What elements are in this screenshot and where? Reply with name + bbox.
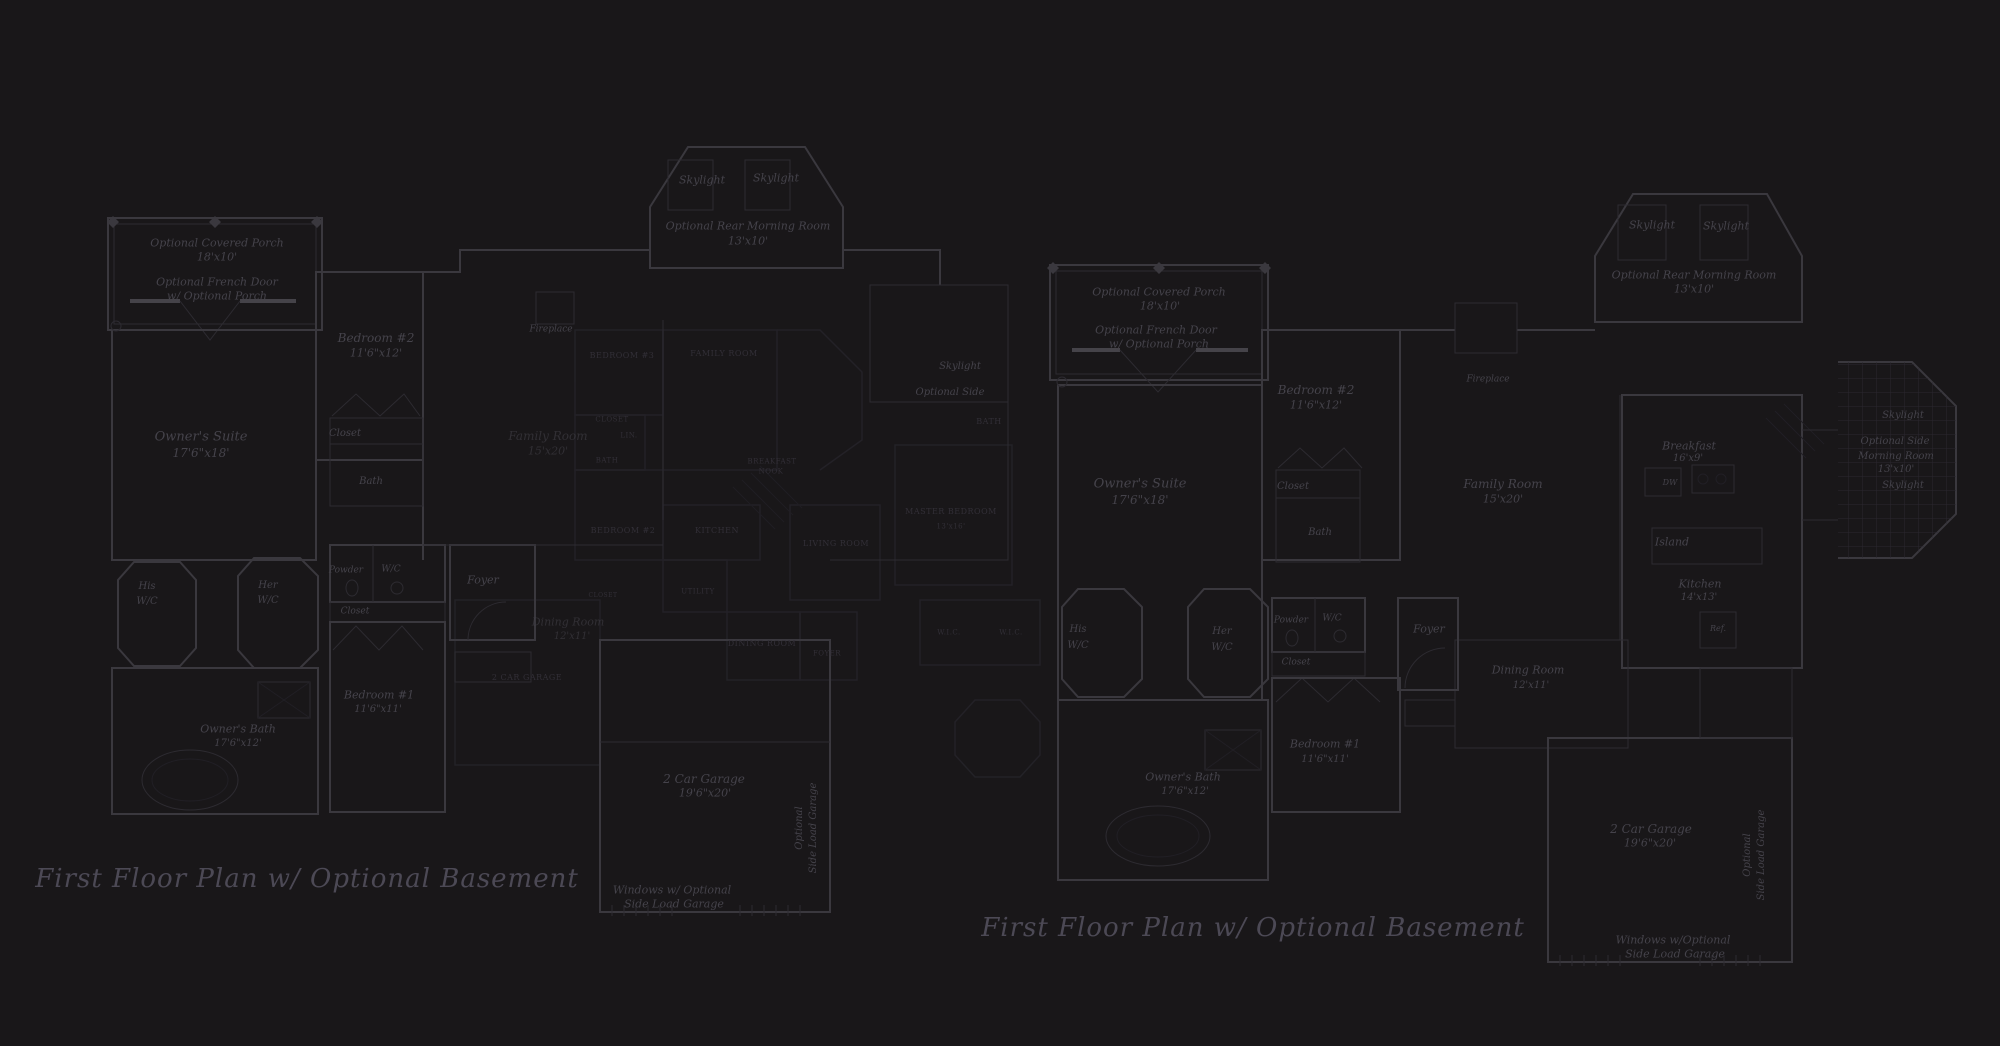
left-garage-opt-1: Optional [795,806,805,849]
right-dining-name: Dining Room [1492,665,1565,676]
left-family-room-dims: 15'x20' [528,446,568,457]
left-garage-windows-1: Windows w/ Optional [613,885,731,896]
left-her-2: W/C [257,596,278,606]
left-her-1: Her [258,581,277,591]
right-closet-upper: Closet [1277,482,1309,492]
right-breakfast-dims: 16'x9' [1673,454,1703,464]
right-bedroom1-dims: 11'6"x11' [1301,755,1349,765]
right-island: Island [1655,537,1689,548]
left-wc: W/C [381,566,400,575]
left-bedroom2-name: Bedroom #2 [338,332,415,344]
mid-garage: 2 CAR GARAGE [492,674,562,682]
right-her-2: W/C [1211,643,1232,653]
right-wc: W/C [1322,615,1341,624]
right-garage-windows-1: Windows w/Optional [1616,935,1731,946]
left-closet-upper: Closet [329,429,361,439]
mid-master-bedroom: MASTER BEDROOM [905,508,997,516]
mid-family-room: FAMILY ROOM [690,350,757,358]
right-porch-dims: 18'x10' [1140,301,1180,312]
left-garage-dims: 19'6"x20' [679,788,731,799]
right-fireplace: Fireplace [1466,376,1509,385]
left-morning-room-name: Optional Rear Morning Room [666,221,831,232]
left-bedroom1-name: Bedroom #1 [344,690,414,701]
right-kitchen-name: Kitchen [1679,579,1722,590]
left-garage-windows-2: Side Load Garage [624,899,724,910]
floor-plan-sheet: First Floor Plan w/ Optional Basement Fi… [0,0,2000,1046]
right-side-morning-dims: 13'x10' [1878,465,1915,475]
right-foyer: Foyer [1413,624,1445,635]
right-bath-upper: Bath [1308,528,1332,538]
mid-closet-2: CLOSET [589,593,618,599]
left-garage-opt-2: Side Load Garage [809,783,819,874]
left-his-2: W/C [136,597,157,607]
right-bedroom2-name: Bedroom #2 [1278,384,1355,396]
left-morning-room-dims: 13'x10' [728,236,768,247]
left-owners-suite-name: Owner's Suite [155,431,248,444]
left-porch-name: Optional Covered Porch [150,238,283,249]
mid-kitchen: KITCHEN [695,527,739,535]
right-porch-name: Optional Covered Porch [1092,287,1225,298]
right-owners-suite-name: Owner's Suite [1094,478,1187,491]
mid-living-room: LIVING ROOM [803,540,869,548]
left-plan-title: First Floor Plan w/ Optional Basement [35,866,579,892]
right-side-skylight-2: Skylight [1882,481,1924,491]
right-closet-lower: Closet [1282,659,1311,668]
mid-lin: LIN. [620,433,637,440]
left-owners-suite-dims: 17'6"x18' [172,447,229,459]
left-skylight-1: Skylight [679,175,725,186]
right-bedroom1-name: Bedroom #1 [1290,739,1360,750]
right-garage-opt-1: Optional [1743,833,1753,876]
left-bedroom1-dims: 11'6"x11' [354,705,402,715]
left-foyer: Foyer [467,575,499,586]
mid-bath-2: BATH [976,418,1002,426]
mid-bedroom3: BEDROOM #3 [590,352,655,360]
right-garage-opt-2: Side Load Garage [1757,810,1767,901]
mid-breakfast: BREAKFAST [747,459,796,466]
left-french-door-1: Optional French Door [156,277,278,288]
right-dining-dims: 12'x11' [1513,681,1550,691]
left-side-optional: Optional Side [916,388,985,398]
left-owners-bath-name: Owner's Bath [200,724,276,735]
mid-bedroom2: BEDROOM #2 [591,527,656,535]
right-french-door-2: w/ Optional Porch [1109,339,1209,350]
right-family-room-dims: 15'x20' [1483,494,1523,505]
left-side-skylight: Skylight [939,362,981,372]
right-owners-bath-name: Owner's Bath [1145,772,1221,783]
right-skylight-1: Skylight [1629,220,1675,231]
right-dw: DW [1663,479,1678,487]
right-powder: Powder [1274,617,1308,626]
right-his-1: His [1069,625,1086,635]
room-labels-layer: First Floor Plan w/ Optional Basement Fi… [0,0,2000,1046]
left-skylight-2: Skylight [753,173,799,184]
right-bedroom2-dims: 11'6"x12' [1290,400,1342,411]
left-his-1: His [138,582,155,592]
right-skylight-2: Skylight [1703,221,1749,232]
left-porch-dims: 18'x10' [197,252,237,263]
mid-wic-1: W.I.C. [937,630,961,637]
left-family-room-name: Family Room [508,430,587,442]
right-kitchen-dims: 14'x13' [1681,593,1718,603]
mid-wic-2: W.I.C. [999,630,1023,637]
right-garage-dims: 19'6"x20' [1624,838,1676,849]
left-bedroom2-dims: 11'6"x12' [350,348,402,359]
mid-master-dims: 13'x16' [936,524,965,531]
left-powder: Powder [329,567,363,576]
mid-dining-room: DINING ROOM [728,640,797,648]
right-his-2: W/C [1067,641,1088,651]
right-plan-title: First Floor Plan w/ Optional Basement [981,915,1525,941]
left-garage-name: 2 Car Garage [663,773,745,785]
mid-foyer: FOYER [813,651,841,658]
left-french-door-2: w/ Optional Porch [167,291,267,302]
right-side-morning-2: Morning Room [1858,452,1934,462]
left-dining-name: Dining Room [532,617,605,628]
right-side-morning-1: Optional Side [1861,437,1930,447]
right-garage-windows-2: Side Load Garage [1625,949,1725,960]
left-dining-dims: 12'x11' [554,632,591,642]
mid-nook: NOOK [759,469,784,476]
right-ref: Ref. [1710,625,1726,633]
right-morning-room-dims: 13'x10' [1674,284,1714,295]
mid-utility: UTILITY [681,589,715,596]
right-garage-name: 2 Car Garage [1610,823,1692,835]
left-owners-bath-dims: 17'6"x12' [214,739,262,749]
right-french-door-1: Optional French Door [1095,325,1217,336]
right-owners-suite-dims: 17'6"x18' [1111,494,1168,506]
right-owners-bath-dims: 17'6"x12' [1161,787,1209,797]
right-family-room-name: Family Room [1463,478,1542,490]
left-bath-upper: Bath [359,477,383,487]
right-morning-room-name: Optional Rear Morning Room [1612,270,1777,281]
right-her-1: Her [1212,627,1231,637]
right-breakfast-name: Breakfast [1662,441,1716,452]
left-closet-lower: Closet [341,608,370,617]
right-side-skylight-1: Skylight [1882,411,1924,421]
mid-closet-1: CLOSET [595,417,628,424]
left-fireplace: Fireplace [529,326,572,335]
mid-bath-1: BATH [596,458,619,465]
